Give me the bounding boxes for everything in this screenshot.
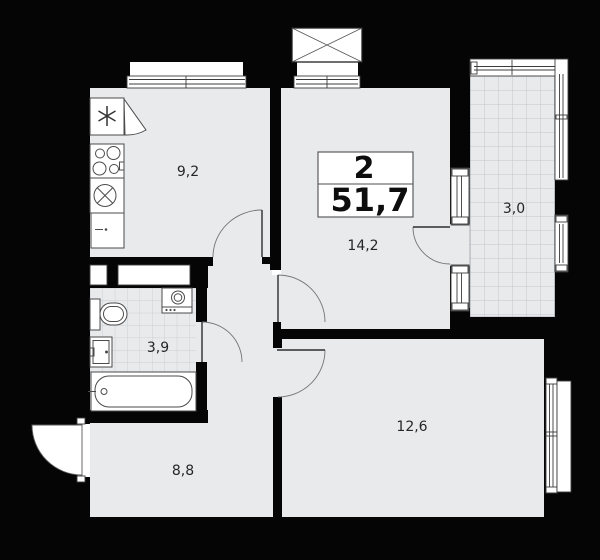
living-door-jamb xyxy=(272,270,281,275)
floor-plan-canvas: 9,2 14,2 3,0 3,9 8,8 12,6 2 51,7 xyxy=(0,0,600,560)
washbasin-icon xyxy=(90,337,112,367)
balcony-right-glazing-upper-icon xyxy=(555,59,568,180)
living-room-area-label: 14,2 xyxy=(347,238,378,254)
floor-plan: 9,2 14,2 3,0 3,9 8,8 12,6 2 51,7 xyxy=(0,0,600,560)
hallway-bedroom-wall xyxy=(273,397,282,517)
balcony-right-wall-b xyxy=(555,272,568,330)
kitchen-door-stub xyxy=(262,257,272,264)
kitchen-cabinet-icon xyxy=(91,213,124,248)
washing-machine-icon xyxy=(162,288,192,313)
bathroom-area-label: 3,9 xyxy=(147,340,169,356)
balcony-floor-grid xyxy=(470,76,555,317)
bathroom-right-wall-lower xyxy=(196,362,207,410)
area-summary-box: 2 51,7 xyxy=(318,151,413,219)
balcony-right-glazing-lower-icon xyxy=(555,215,568,272)
hallway-area-label: 8,8 xyxy=(172,463,194,479)
bedroom-right-wall-upper xyxy=(544,339,571,378)
stove-icon xyxy=(90,144,124,178)
left-wall-upper xyxy=(78,62,90,424)
balcony-area-label: 3,0 xyxy=(503,201,525,217)
floor-areas xyxy=(90,76,555,517)
bathroom-bottom-wall xyxy=(89,410,208,423)
balcony-top-glazing-icon xyxy=(470,59,568,76)
balcony-door-opening-floor xyxy=(450,224,470,266)
living-window-icon xyxy=(294,76,360,88)
bathtub-icon xyxy=(88,372,196,411)
bedroom-window-icon xyxy=(546,378,571,493)
bedroom-right-wall-lower xyxy=(544,492,571,518)
kitchen-window-sill xyxy=(130,62,243,77)
kitchen-living-wall xyxy=(270,88,281,270)
bedroom-area-label: 12,6 xyxy=(396,419,427,435)
total-area-label: 51,7 xyxy=(331,181,410,219)
bedroom-window-sill xyxy=(557,381,571,492)
hallway-bedroom-stub xyxy=(273,339,282,348)
kitchen-area-label: 9,2 xyxy=(177,164,199,180)
living-right-wall xyxy=(450,88,470,168)
living-window-sill xyxy=(297,62,358,77)
vent-shaft-icon xyxy=(118,265,190,285)
kitchen-window-icon xyxy=(127,76,246,88)
balcony-lower-window-icon xyxy=(451,265,469,311)
bottom-wall xyxy=(78,517,571,532)
under-balcony-wall-b xyxy=(468,317,568,339)
vent-shaft-icon xyxy=(90,265,107,285)
balcony-upper-window-icon xyxy=(451,168,469,225)
kitchen-sink-icon xyxy=(90,178,124,213)
balcony-right-wall-a xyxy=(555,180,568,215)
ventilation-shafts xyxy=(90,265,190,285)
bathroom-right-wall-upper xyxy=(196,288,207,322)
under-balcony-wall-a xyxy=(451,308,470,339)
vent-box-icon xyxy=(292,28,362,62)
